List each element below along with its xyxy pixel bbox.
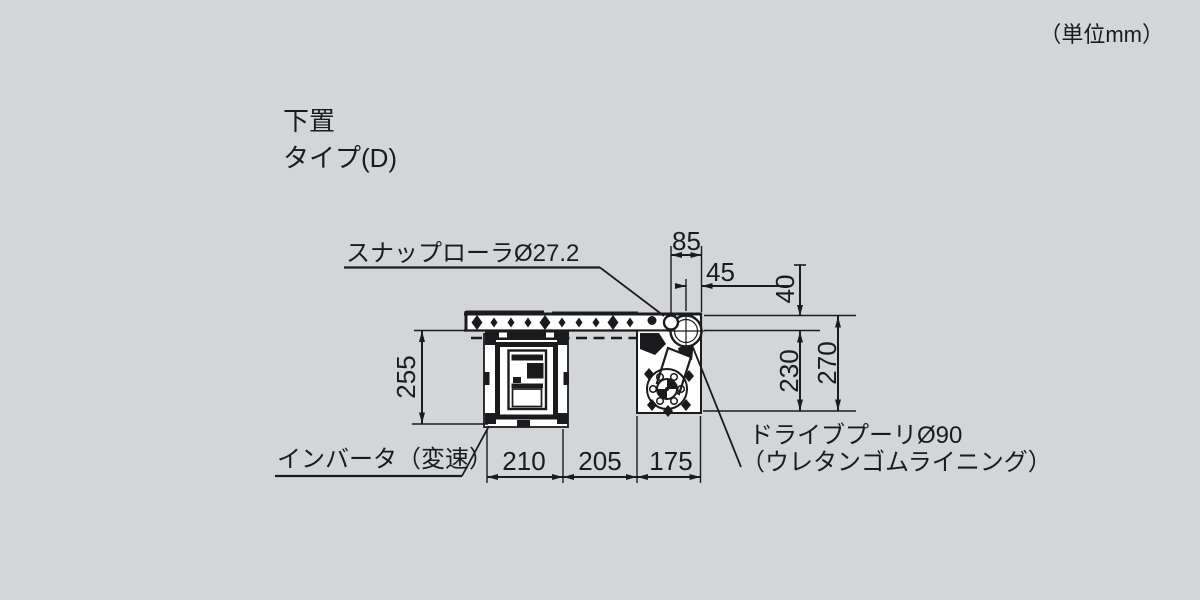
bottom-tab (517, 420, 530, 427)
dim-text-85: 85 (672, 226, 701, 256)
title-line2: タイプ(D) (283, 143, 397, 173)
rail-top-plate-right (552, 312, 638, 315)
inverter-cover-panel (513, 389, 542, 407)
callout-drive-pulley-note: （ウレタンゴムライニング） (741, 449, 1052, 476)
dim-text-230: 230 (774, 349, 804, 392)
callout-drive-pulley-text: ドライブプーリØ90 (749, 422, 962, 449)
inverter-rail-mount (485, 331, 569, 341)
corner-bracket (557, 413, 568, 424)
drawing-title: 下置 タイプ(D) (283, 106, 397, 173)
dim-text-205: 205 (578, 446, 621, 476)
inverter-assembly (484, 331, 569, 428)
callout-inverter-text: インバータ（変速） (277, 446, 493, 473)
technical-drawing-page: （単位mm） 下置 タイプ(D) (0, 0, 1200, 600)
callout-snap-roller-text: スナップローラØ27.2 (346, 240, 579, 267)
corner-bracket (485, 413, 496, 424)
callout-snap-roller: スナップローラØ27.2 (344, 240, 664, 316)
corner-bracket (557, 336, 568, 345)
callout-inverter: インバータ（変速） (275, 426, 493, 476)
idler-dot (648, 316, 657, 325)
dim-text-270: 270 (812, 341, 842, 384)
mount-notch (499, 333, 507, 338)
inverter-terminal-row (512, 355, 544, 361)
inverter-display-block (527, 363, 544, 379)
inverter-key-block (513, 377, 521, 383)
dim-text-255: 255 (391, 355, 421, 398)
dimension-255: 255 (391, 331, 488, 425)
dimension-230: 230 (774, 331, 804, 411)
inverter-divider (512, 384, 544, 389)
mount-notch (546, 333, 554, 338)
snap-roller-circle (664, 316, 678, 330)
rail-top-plate-left (466, 311, 544, 315)
unit-note: （単位mm） (1039, 22, 1164, 47)
side-tab (484, 372, 490, 385)
drawing-canvas: （単位mm） 下置 タイプ(D) (0, 0, 1200, 600)
corner-bracket (485, 336, 496, 345)
hub-center (665, 387, 669, 391)
dim-text-175: 175 (649, 446, 692, 476)
dim-text-210: 210 (502, 446, 545, 476)
dim-text-45: 45 (706, 257, 735, 287)
title-line1: 下置 (283, 106, 335, 136)
dim-text-40: 40 (770, 275, 800, 304)
side-tab (564, 372, 570, 385)
